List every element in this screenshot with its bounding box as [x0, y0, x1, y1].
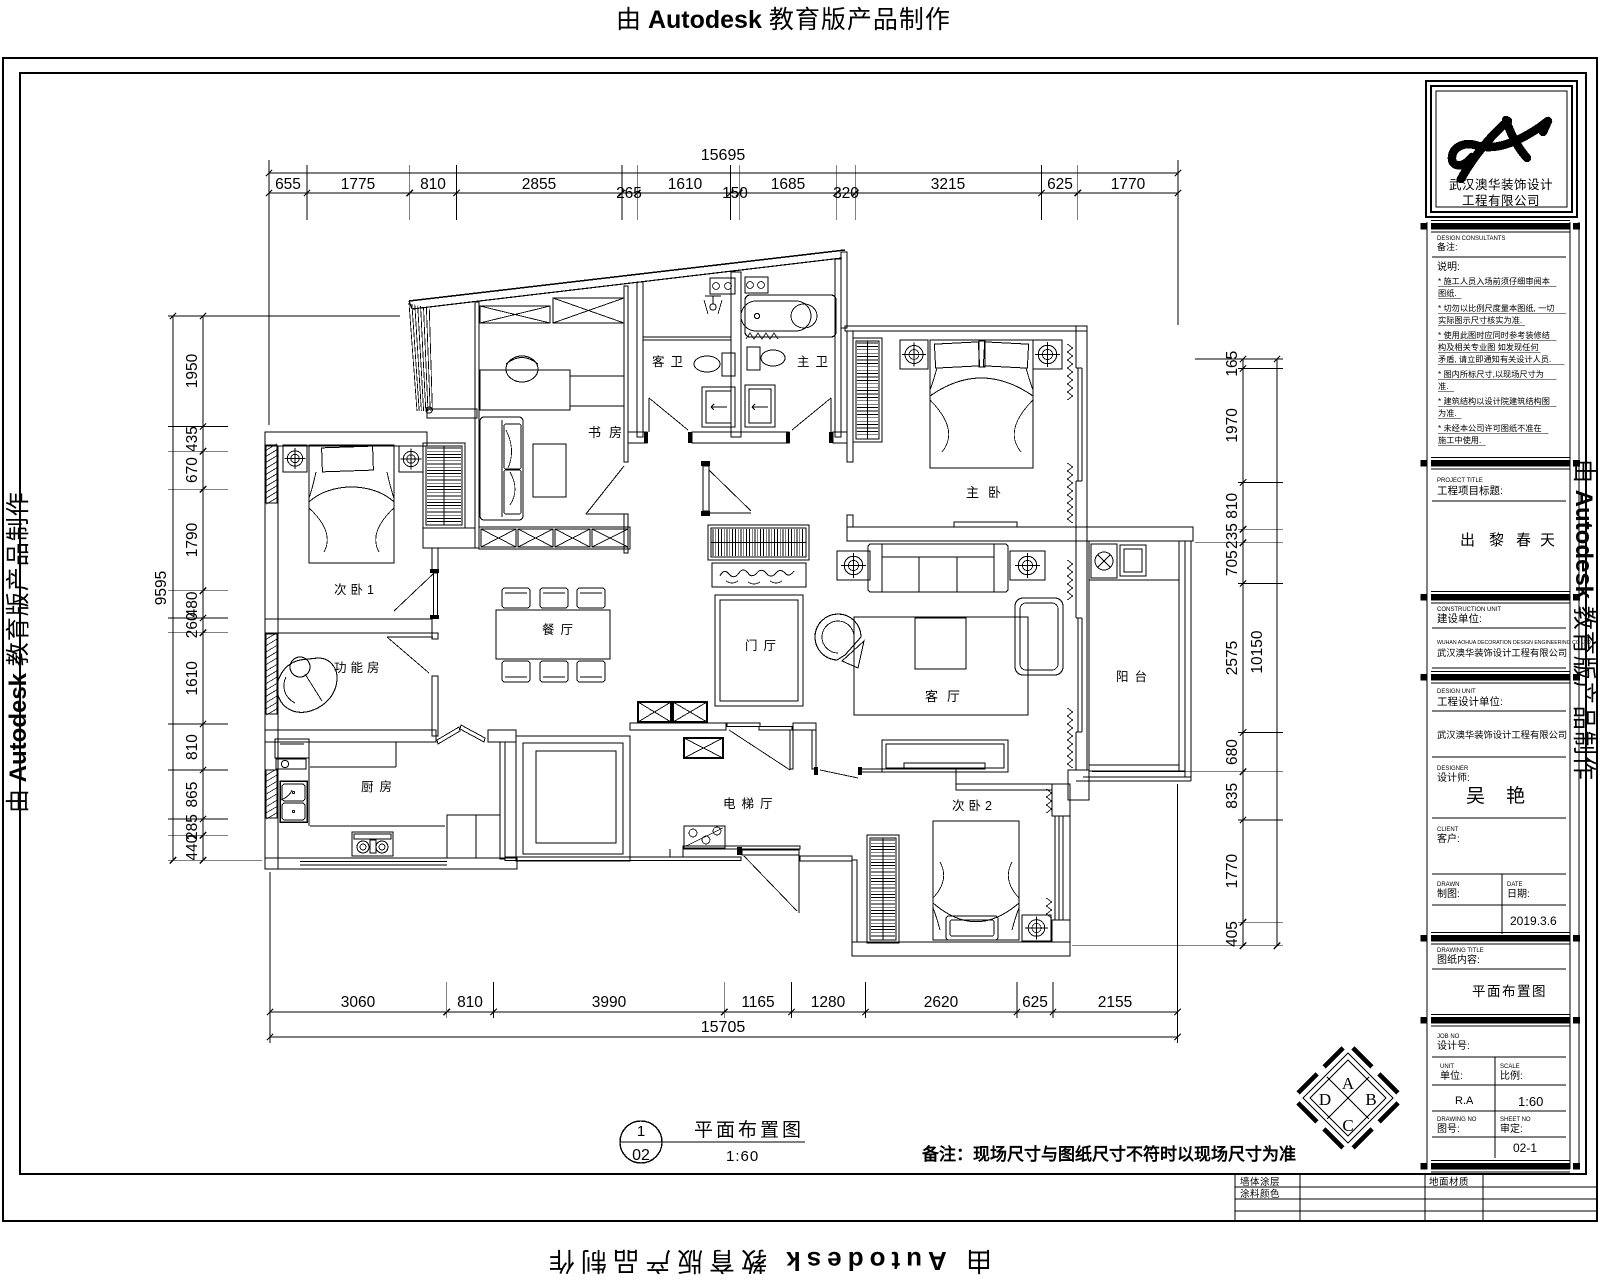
svg-text:150: 150 [722, 185, 748, 202]
svg-text:* 切勿以比例尺度量本图纸, 一切: * 切勿以比例尺度量本图纸, 一切 [1438, 303, 1554, 313]
svg-text:835: 835 [1224, 783, 1241, 809]
svg-text:矛盾, 请立即通知有关设计人员.: 矛盾, 请立即通知有关设计人员. [1438, 354, 1551, 364]
svg-text:2019.3.6: 2019.3.6 [1510, 914, 1557, 928]
svg-text:1770: 1770 [1224, 853, 1241, 888]
svg-text:审定:: 审定: [1500, 1122, 1523, 1135]
svg-text:1685: 1685 [771, 176, 805, 193]
svg-text:02-1: 02-1 [1513, 1141, 1537, 1155]
svg-text:1:60: 1:60 [726, 1148, 759, 1165]
svg-text:平面布置图: 平面布置图 [1472, 984, 1547, 999]
svg-text:客厅: 客厅 [925, 689, 969, 704]
svg-text:艳: 艳 [1506, 785, 1525, 807]
svg-text:建设单位:: 建设单位: [1437, 612, 1482, 625]
svg-text:625: 625 [1047, 176, 1073, 193]
svg-text:1: 1 [637, 1123, 645, 1140]
svg-text:出: 出 [1460, 532, 1475, 549]
svg-text:为准.: 为准. [1438, 408, 1457, 418]
svg-text:2575: 2575 [1224, 641, 1241, 675]
svg-text:客卫: 客卫 [652, 354, 689, 369]
svg-text:320: 320 [833, 185, 859, 202]
svg-text:工程有限公司: 工程有限公司 [1462, 193, 1540, 208]
svg-text:次卧1: 次卧1 [334, 583, 378, 597]
svg-text:435: 435 [184, 426, 201, 452]
svg-text:1:60: 1:60 [1518, 1094, 1543, 1109]
svg-text:02: 02 [632, 1147, 650, 1164]
svg-text:设计号:: 设计号: [1437, 1039, 1470, 1052]
svg-text:2855: 2855 [522, 176, 556, 193]
svg-text:CLIENT: CLIENT [1437, 827, 1459, 833]
svg-text:阳台: 阳台 [1116, 669, 1153, 684]
svg-text:15695: 15695 [701, 147, 746, 164]
svg-text:260: 260 [184, 612, 201, 638]
svg-text:405: 405 [1224, 921, 1241, 947]
svg-text:440: 440 [184, 834, 201, 860]
svg-text:680: 680 [1224, 739, 1241, 765]
svg-text:次卧2: 次卧2 [952, 799, 996, 813]
svg-text:1165: 1165 [741, 994, 774, 1011]
svg-text:1280: 1280 [811, 994, 846, 1011]
svg-text:1790: 1790 [184, 522, 201, 557]
svg-text:* 建筑结构以设计院建筑结构图: * 建筑结构以设计院建筑结构图 [1438, 396, 1550, 406]
svg-text:B: B [1365, 1090, 1376, 1109]
svg-text:图纸.: 图纸. [1438, 288, 1457, 298]
svg-text:武汉澳华装饰设计: 武汉澳华装饰设计 [1449, 177, 1553, 192]
svg-text:810: 810 [420, 176, 446, 193]
svg-text:* 图内所标尺寸,以现场尺寸为: * 图内所标尺寸,以现场尺寸为 [1438, 369, 1544, 379]
svg-text:由 Autodesk 教育版产品制作: 由 Autodesk 教育版产品制作 [5, 491, 32, 813]
svg-text:春: 春 [1516, 532, 1531, 549]
svg-text:单位:: 单位: [1440, 1069, 1463, 1082]
svg-text:DRAWING TITLE: DRAWING TITLE [1437, 948, 1484, 954]
svg-text:墙体涂层: 墙体涂层 [1240, 1176, 1280, 1188]
svg-text:3990: 3990 [592, 994, 627, 1011]
svg-text:准.: 准. [1438, 381, 1448, 391]
svg-text:主卫: 主卫 [797, 355, 834, 369]
svg-text:餐厅: 餐厅 [542, 622, 579, 637]
svg-text:图纸内容:: 图纸内容: [1437, 953, 1480, 966]
svg-text:电梯厅: 电梯厅 [723, 797, 779, 811]
svg-text:DESIGNER: DESIGNER [1437, 766, 1469, 772]
svg-text:DRAWING NO: DRAWING NO [1437, 1117, 1477, 1123]
svg-text:客户:: 客户: [1437, 832, 1460, 845]
svg-text:武汉澳华装饰设计工程有限公司: 武汉澳华装饰设计工程有限公司 [1437, 647, 1567, 658]
svg-text:武汉澳华装饰设计工程有限公司: 武汉澳华装饰设计工程有限公司 [1437, 729, 1567, 740]
svg-text:* 施工人员入场前须仔细审阅本: * 施工人员入场前须仔细审阅本 [1438, 276, 1550, 286]
svg-text:705: 705 [1224, 550, 1241, 576]
svg-text:655: 655 [275, 176, 301, 193]
svg-text:PROJECT TITLE: PROJECT TITLE [1437, 478, 1483, 484]
svg-text:D: D [1319, 1090, 1331, 1109]
svg-text:1775: 1775 [341, 176, 375, 193]
svg-text:书房: 书房 [588, 425, 630, 440]
svg-text:DESIGN UNIT: DESIGN UNIT [1437, 689, 1476, 695]
svg-text:地面材质: 地面材质 [1429, 1176, 1469, 1188]
svg-text:平面布置图: 平面布置图 [694, 1119, 804, 1141]
svg-text:JOB NO: JOB NO [1437, 1034, 1460, 1040]
svg-text:由 Autodesk 教育版产品制作: 由 Autodesk 教育版产品制作 [1570, 459, 1597, 781]
svg-text:2155: 2155 [1098, 994, 1132, 1011]
svg-text:1610: 1610 [668, 176, 703, 193]
svg-text:主卧: 主卧 [966, 485, 1010, 500]
svg-text:设计师:: 设计师: [1437, 771, 1470, 784]
svg-text:吴: 吴 [1466, 786, 1485, 807]
svg-text:构及相关专业图 如发现任何: 构及相关专业图 如发现任何 [1438, 342, 1539, 352]
svg-text:810: 810 [1224, 492, 1241, 518]
svg-text:实际图示尺寸核实为准.: 实际图示尺寸核实为准. [1438, 315, 1522, 325]
svg-text:3215: 3215 [931, 176, 965, 193]
svg-text:由 Autodesk 教育版产品制作: 由 Autodesk 教育版产品制作 [616, 6, 951, 34]
svg-text:810: 810 [457, 994, 483, 1011]
svg-text:由 Autodesk 教育版产品制作: 由 Autodesk 教育版产品制作 [543, 1246, 992, 1276]
svg-text:日期:: 日期: [1507, 888, 1530, 900]
svg-text:1610: 1610 [184, 661, 201, 696]
svg-text:265: 265 [616, 185, 642, 202]
svg-text:施工中使用.: 施工中使用. [1438, 435, 1481, 445]
svg-text:DRAWN: DRAWN [1437, 882, 1459, 888]
svg-text:比例:: 比例: [1500, 1069, 1523, 1082]
svg-text:* 未经本公司许可图纸不准在: * 未经本公司许可图纸不准在 [1438, 423, 1542, 433]
svg-text:图号:: 图号: [1437, 1123, 1460, 1135]
svg-text:门厅: 门厅 [745, 638, 782, 653]
svg-text:* 使用此图时应同时参考装修结: * 使用此图时应同时参考装修结 [1438, 330, 1550, 340]
svg-text:1950: 1950 [184, 353, 201, 388]
svg-text:670: 670 [184, 457, 201, 483]
svg-text:SHEET NO: SHEET NO [1500, 1117, 1531, 1123]
svg-text:235: 235 [1224, 523, 1241, 549]
svg-text:WUHAN AOHUA DECORATION DESIGN: WUHAN AOHUA DECORATION DESIGN ENGINEERIN… [1437, 640, 1591, 646]
svg-text:制图:: 制图: [1437, 887, 1460, 900]
svg-text:R.A: R.A [1455, 1095, 1474, 1107]
svg-text:厨房: 厨房 [361, 779, 398, 794]
svg-text:9595: 9595 [153, 571, 170, 605]
svg-text:工程设计单位:: 工程设计单位: [1437, 695, 1503, 708]
svg-text:黎: 黎 [1489, 532, 1504, 549]
svg-text:625: 625 [1022, 994, 1048, 1011]
svg-text:工程项目标题:: 工程项目标题: [1437, 485, 1503, 497]
svg-text:3060: 3060 [341, 994, 376, 1011]
svg-text:UNIT: UNIT [1440, 1064, 1454, 1070]
svg-text:DATE: DATE [1507, 882, 1523, 888]
svg-text:功能房: 功能房 [334, 660, 384, 675]
svg-text:865: 865 [184, 782, 201, 808]
svg-text:天: 天 [1540, 532, 1555, 549]
svg-text:1770: 1770 [1111, 176, 1146, 193]
svg-text:165: 165 [1224, 351, 1241, 377]
svg-text:10150: 10150 [1249, 630, 1266, 673]
svg-text:15705: 15705 [701, 1019, 746, 1036]
svg-text:SCALE: SCALE [1500, 1064, 1520, 1070]
svg-text:说明:: 说明: [1437, 260, 1460, 273]
svg-text:备注:: 备注: [1437, 241, 1458, 252]
svg-text:2620: 2620 [924, 994, 959, 1011]
svg-text:C: C [1342, 1116, 1353, 1135]
svg-text:A: A [1342, 1074, 1355, 1093]
svg-text:810: 810 [184, 734, 201, 760]
svg-text:备注：现场尺寸与图纸尺寸不符时以现场尺寸为准: 备注：现场尺寸与图纸尺寸不符时以现场尺寸为准 [921, 1144, 1296, 1164]
svg-text:涂料颜色: 涂料颜色 [1240, 1188, 1280, 1200]
svg-text:1970: 1970 [1224, 408, 1241, 443]
